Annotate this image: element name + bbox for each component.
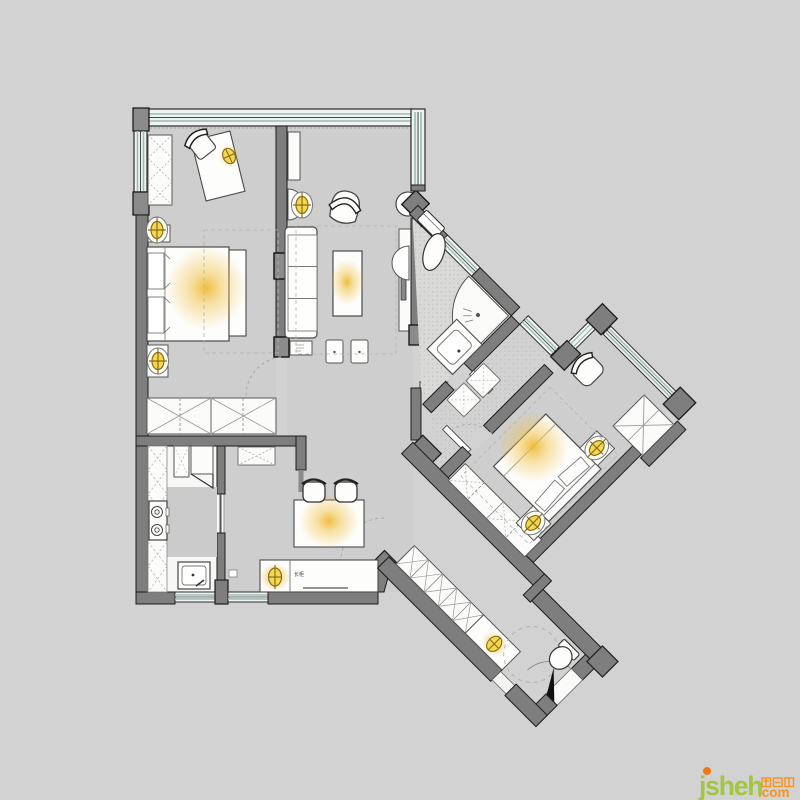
svg-text:jsheh: jsheh (698, 771, 762, 800)
svg-text:长柜: 长柜 (294, 571, 304, 578)
svg-text:.com: .com (758, 785, 790, 800)
